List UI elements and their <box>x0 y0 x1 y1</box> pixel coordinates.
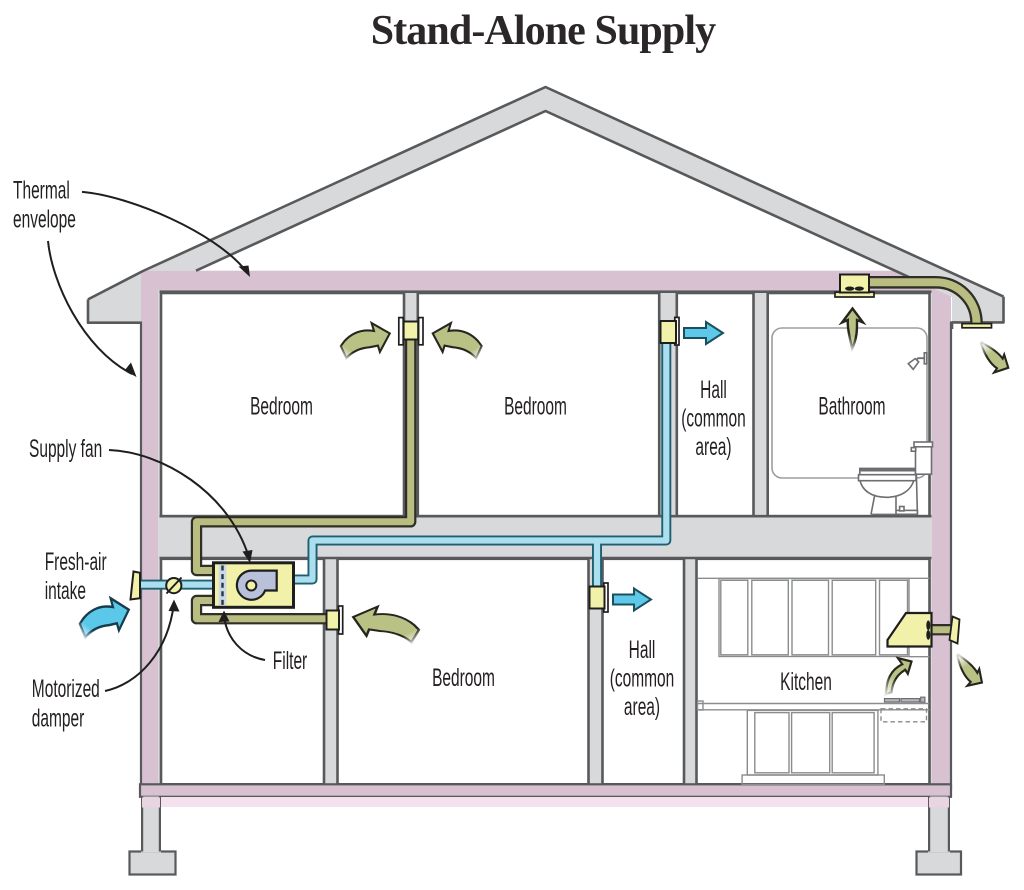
svg-text:Bedroom: Bedroom <box>432 664 495 692</box>
svg-text:(common: (common <box>610 665 675 693</box>
svg-text:Motorized: Motorized <box>32 675 100 703</box>
svg-text:Fresh-air: Fresh-air <box>45 548 107 576</box>
svg-text:damper: damper <box>32 705 85 733</box>
svg-text:Stand-Alone Supply: Stand-Alone Supply <box>371 8 716 54</box>
svg-text:Bedroom: Bedroom <box>250 393 313 421</box>
svg-text:Thermal: Thermal <box>13 177 70 205</box>
svg-text:area): area) <box>624 693 660 721</box>
svg-text:Hall: Hall <box>629 636 656 664</box>
svg-text:Bathroom: Bathroom <box>818 393 885 421</box>
svg-text:Bedroom: Bedroom <box>504 393 567 421</box>
svg-text:Kitchen: Kitchen <box>780 668 832 696</box>
svg-text:envelope: envelope <box>13 206 76 234</box>
svg-text:Supply fan: Supply fan <box>29 435 102 463</box>
svg-text:intake: intake <box>45 577 86 605</box>
svg-text:Filter: Filter <box>273 647 307 675</box>
svg-text:(common: (common <box>681 405 746 433</box>
svg-text:Hall: Hall <box>700 376 727 404</box>
svg-text:area): area) <box>695 433 731 461</box>
